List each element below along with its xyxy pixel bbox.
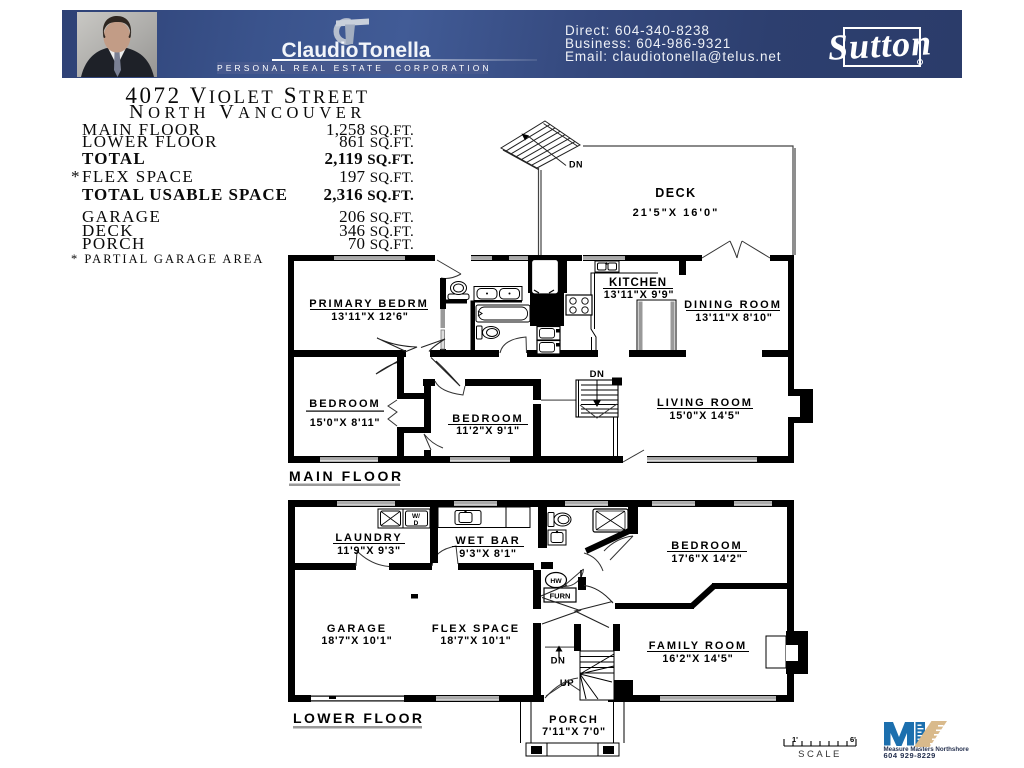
svg-text:21'5"X 16'0": 21'5"X 16'0" (633, 207, 720, 219)
svg-text:DN: DN (551, 656, 566, 667)
svg-text:DECK: DECK (655, 186, 696, 200)
svg-text:DN: DN (569, 160, 583, 170)
svg-text:15'0"X 8'11": 15'0"X 8'11" (310, 417, 381, 429)
svg-text:11'9"X 9'3": 11'9"X 9'3" (337, 545, 401, 557)
svg-text:BEDROOM: BEDROOM (309, 398, 380, 410)
svg-text:FAMILY ROOM: FAMILY ROOM (649, 640, 747, 652)
svg-text:DINING ROOM: DINING ROOM (684, 299, 782, 311)
svg-text:13'11"X 9'9": 13'11"X 9'9" (604, 289, 675, 301)
svg-text:FURN: FURN (550, 592, 571, 601)
svg-text:LAUNDRY: LAUNDRY (335, 532, 402, 544)
svg-text:MAIN FLOOR: MAIN FLOOR (289, 468, 404, 484)
svg-text:7'11"X 7'0": 7'11"X 7'0" (542, 726, 606, 738)
svg-text:13'11"X 12'6": 13'11"X 12'6" (331, 311, 408, 323)
svg-text:1': 1' (792, 735, 798, 744)
svg-text:6': 6' (850, 735, 856, 744)
svg-text:LOWER FLOOR: LOWER FLOOR (293, 710, 424, 726)
svg-text:11'2"X 9'1": 11'2"X 9'1" (456, 425, 520, 437)
svg-text:HW: HW (550, 578, 562, 585)
svg-text:18'7"X 10'1": 18'7"X 10'1" (321, 635, 392, 647)
svg-text:18'7"X 10'1": 18'7"X 10'1" (440, 635, 511, 647)
svg-text:WET BAR: WET BAR (455, 535, 520, 547)
svg-text:KITCHEN: KITCHEN (609, 277, 667, 289)
svg-text:SCALE: SCALE (798, 749, 842, 760)
svg-text:13'11"X 8'10": 13'11"X 8'10" (695, 312, 772, 324)
svg-text:DN: DN (590, 369, 605, 380)
svg-text:PORCH: PORCH (549, 714, 599, 726)
svg-text:BEDROOM: BEDROOM (452, 413, 523, 425)
svg-text:BEDROOM: BEDROOM (671, 540, 742, 552)
svg-text:604 929-8229: 604 929-8229 (884, 751, 936, 760)
svg-text:15'0"X 14'5": 15'0"X 14'5" (669, 410, 740, 422)
svg-text:D: D (414, 520, 419, 527)
svg-text:16'2"X 14'5": 16'2"X 14'5" (662, 653, 733, 665)
svg-text:9'3"X 8'1": 9'3"X 8'1" (459, 548, 517, 560)
svg-text:FLEX SPACE: FLEX SPACE (432, 623, 520, 635)
svg-text:PRIMARY BEDRM: PRIMARY BEDRM (309, 298, 429, 310)
svg-text:17'6"X 14'2": 17'6"X 14'2" (671, 553, 742, 565)
svg-text:W/: W/ (412, 513, 420, 520)
svg-text:GARAGE: GARAGE (327, 623, 387, 635)
svg-text:LIVING ROOM: LIVING ROOM (657, 397, 753, 409)
